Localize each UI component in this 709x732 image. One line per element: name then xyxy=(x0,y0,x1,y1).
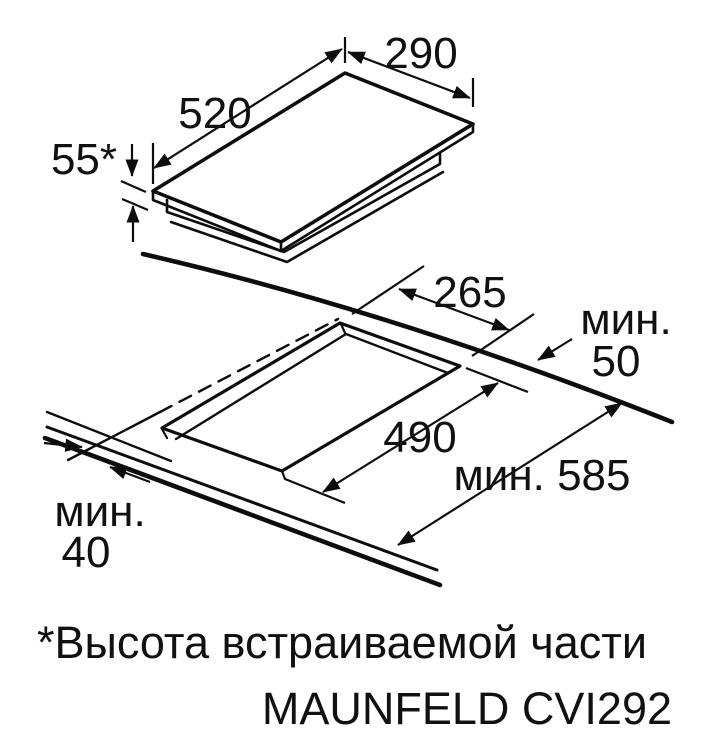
footnote-text: *Высота встраиваемой части xyxy=(37,620,647,665)
dim-cutout-depth-label: 490 xyxy=(383,416,456,460)
dim-hob-height xyxy=(121,144,148,242)
installation-diagram: 290 520 55* 265 мин. 50 490 мин. 585 мин… xyxy=(0,0,709,732)
dim-rear-clearance-word: мин. xyxy=(580,298,671,342)
dim-hob-width-label: 290 xyxy=(384,32,457,76)
dim-rear-clearance xyxy=(538,339,572,360)
dim-worktop-depth-label: мин. 585 xyxy=(454,454,631,498)
dim-front-clearance-value: 40 xyxy=(62,531,111,575)
model-text: MAUNFELD CVI292 xyxy=(262,686,672,731)
dim-hob-depth-label: 520 xyxy=(178,92,251,136)
dim-cutout-width-label: 265 xyxy=(433,271,506,315)
dim-front-clearance xyxy=(44,443,150,482)
dim-hob-height-label: 55* xyxy=(51,138,117,182)
dim-rear-clearance-value: 50 xyxy=(592,340,641,384)
